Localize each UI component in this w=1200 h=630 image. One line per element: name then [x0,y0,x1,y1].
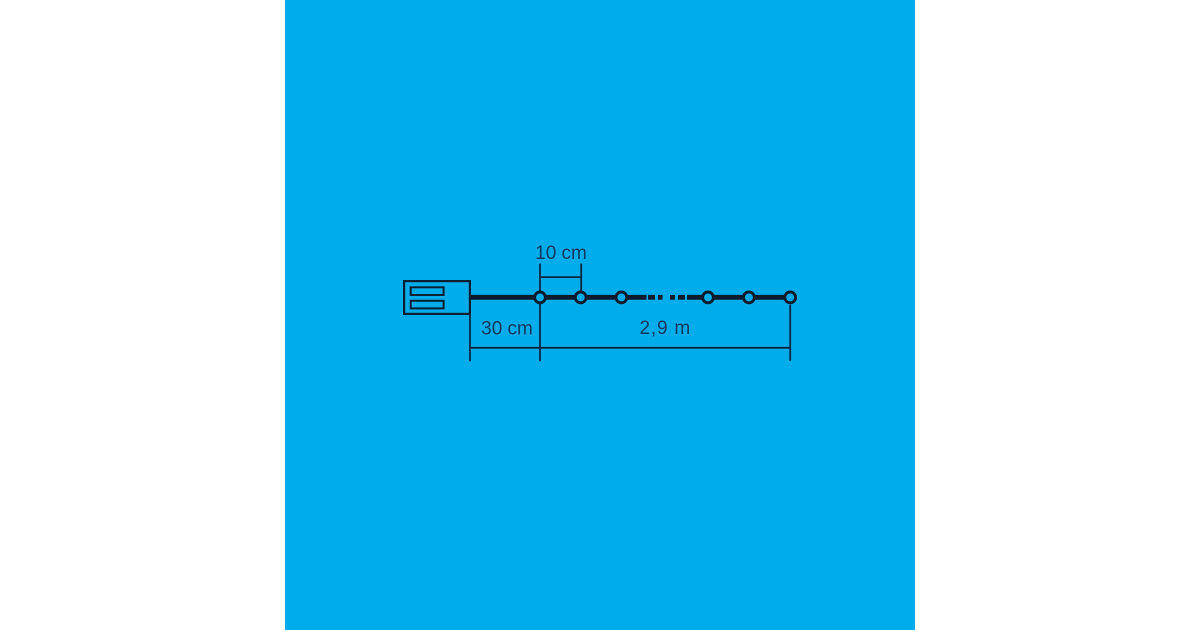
svg-text:30 cm: 30 cm [481,319,533,340]
svg-text:10 cm: 10 cm [535,243,587,264]
svg-text:2,9 m: 2,9 m [640,318,692,339]
